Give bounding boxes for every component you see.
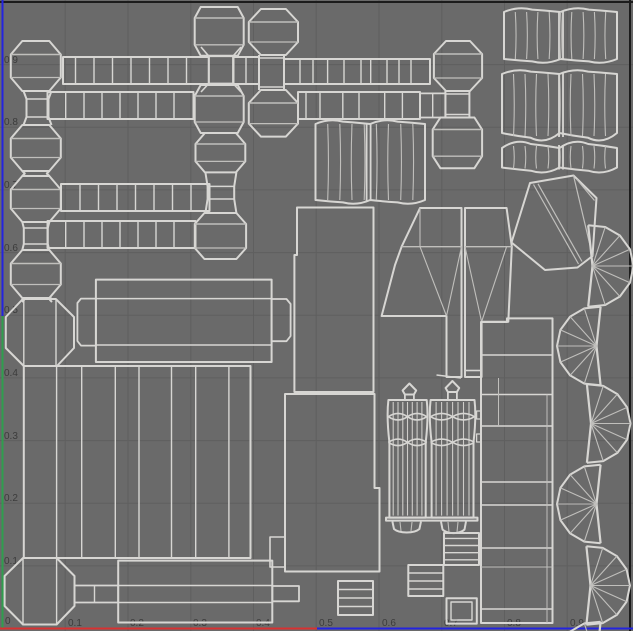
svg-text:0.4: 0.4 <box>4 368 18 379</box>
svg-text:0.6: 0.6 <box>382 618 396 629</box>
svg-text:0.6: 0.6 <box>4 243 18 254</box>
svg-text:0.8: 0.8 <box>4 117 18 128</box>
svg-text:0.2: 0.2 <box>4 493 18 504</box>
svg-text:0: 0 <box>5 616 11 627</box>
svg-text:0.5: 0.5 <box>319 618 333 629</box>
svg-text:0.1: 0.1 <box>68 618 82 629</box>
svg-text:0.3: 0.3 <box>4 431 18 442</box>
